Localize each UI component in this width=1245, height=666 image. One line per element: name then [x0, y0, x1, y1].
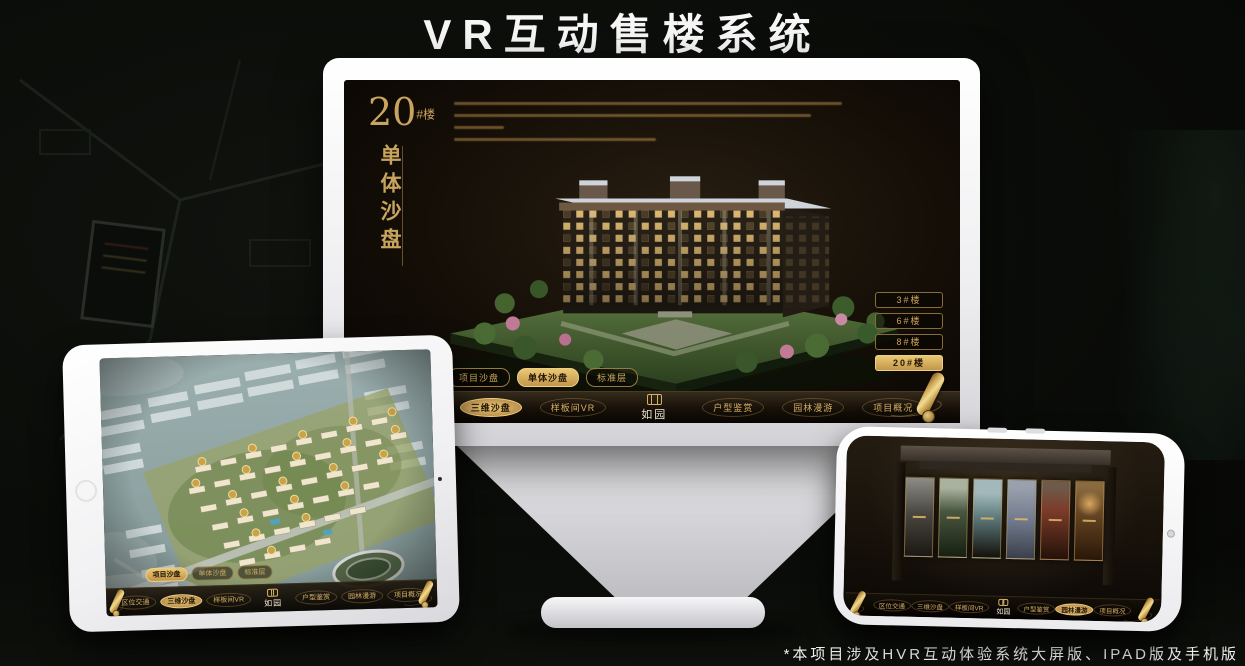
nav-item-garden-roam[interactable]: 园林漫游: [785, 398, 841, 417]
promo-canvas: VR互动售楼系统 20#楼 单体沙盘: [0, 0, 1245, 666]
main-navbar: 区位交通 三维沙盘 样板间VR 如园 户型鉴赏 园林漫游 项目概况: [845, 592, 1159, 622]
monitor-stand-base: [541, 597, 765, 628]
tab-standard-floor[interactable]: 标准层: [237, 565, 272, 580]
logo-text: 如园: [996, 607, 1010, 617]
tab-project-sandtable[interactable]: 项目沙盘: [448, 368, 510, 387]
page-title: VR互动售楼系统: [0, 1, 1245, 62]
section-title-vertical: 单体沙盘: [375, 144, 405, 256]
tab-single-building[interactable]: 单体沙盘: [191, 566, 233, 581]
seal-icon: [647, 394, 662, 405]
background-trees-river: [1095, 130, 1245, 460]
phone-screen: 区位交通 三维沙盘 样板间VR 如园 户型鉴赏 园林漫游 项目概况: [843, 435, 1165, 622]
camera-icon: [1167, 530, 1175, 538]
scroll-icon[interactable]: [112, 588, 123, 616]
scroll-icon[interactable]: [421, 580, 432, 608]
nav-item-location[interactable]: 区位交通: [876, 599, 908, 612]
tab-project-sandtable[interactable]: 项目沙盘: [145, 567, 187, 582]
gallery-panel[interactable]: [938, 477, 969, 558]
scroll-icon[interactable]: [853, 590, 864, 618]
tab-single-building[interactable]: 单体沙盘: [517, 368, 579, 387]
floor-button-3[interactable]: 3#楼: [875, 292, 943, 308]
scroll-icon[interactable]: [1141, 597, 1152, 623]
volume-button: [1025, 428, 1045, 433]
floor-button-8[interactable]: 8#楼: [875, 334, 943, 350]
floor-button-20[interactable]: 20#楼: [875, 355, 943, 371]
nav-item-garden-roam[interactable]: 园林漫游: [344, 588, 380, 603]
tablet-device: 项目沙盘 单体沙盘 标准层 区位交通 三维沙盘 样板间VR 如园 户型鉴赏 园林…: [62, 335, 460, 633]
nav-item-showroom-vr[interactable]: 样板间VR: [952, 601, 987, 614]
gallery-panel[interactable]: [1006, 479, 1037, 560]
ruyuan-logo: 如园: [264, 588, 283, 608]
background-wall-plaque: [80, 220, 166, 328]
nav-item-showroom-vr[interactable]: 样板间VR: [543, 398, 604, 417]
nav-item-floorplans[interactable]: 户型鉴赏: [298, 590, 334, 605]
building-number-suffix: #楼: [416, 108, 435, 122]
scroll-icon[interactable]: [922, 371, 940, 421]
scene-pillar: [891, 462, 905, 580]
floor-selector: 3#楼 6#楼 8#楼 20#楼: [875, 292, 943, 371]
logo-text: 如园: [641, 406, 667, 422]
seal-icon: [267, 588, 278, 596]
nav-item-showroom-vr[interactable]: 样板间VR: [209, 592, 248, 607]
footnote-text: *本项目涉及HVR互动体验系统大屏版、IPAD版及手机版: [784, 643, 1239, 664]
seal-icon: [999, 599, 1009, 606]
volume-button: [987, 427, 1007, 432]
building-3d-render[interactable]: [439, 136, 909, 400]
ruyuan-logo: 如园: [996, 599, 1010, 617]
gallery-panel[interactable]: [904, 477, 935, 558]
nav-item-garden-roam[interactable]: 园林漫游: [1058, 603, 1090, 616]
tab-standard-floor[interactable]: 标准层: [586, 368, 638, 387]
scene-gallery: [904, 477, 1105, 561]
gallery-panel[interactable]: [972, 478, 1003, 559]
nav-item-3d-sandtable[interactable]: 三维沙盘: [163, 593, 199, 608]
home-button[interactable]: [75, 479, 98, 502]
floor-button-6[interactable]: 6#楼: [875, 313, 943, 329]
tablet-screen: 项目沙盘 单体沙盘 标准层 区位交通 三维沙盘 样板间VR 如园 户型鉴赏 园林…: [99, 349, 437, 616]
camera-icon: [438, 476, 442, 480]
building-number: 20: [368, 90, 416, 134]
gallery-panel[interactable]: [1074, 480, 1105, 561]
view-tab-group: 项目沙盘 单体沙盘 标准层: [448, 368, 638, 387]
ruyuan-logo: 如园: [641, 394, 667, 422]
nav-item-3d-sandtable[interactable]: 三维沙盘: [463, 398, 519, 417]
nav-item-3d-sandtable[interactable]: 三维沙盘: [914, 600, 946, 613]
logo-text: 如园: [264, 597, 282, 608]
nav-item-floorplans[interactable]: 户型鉴赏: [705, 398, 761, 417]
scene-pillar: [1103, 467, 1117, 585]
building-number-label: 20#楼: [368, 92, 435, 132]
phone-device: 区位交通 三维沙盘 样板间VR 如园 户型鉴赏 园林漫游 项目概况: [833, 426, 1185, 632]
nav-item-floorplans[interactable]: 户型鉴赏: [1020, 602, 1052, 615]
gallery-panel[interactable]: [1040, 480, 1071, 561]
